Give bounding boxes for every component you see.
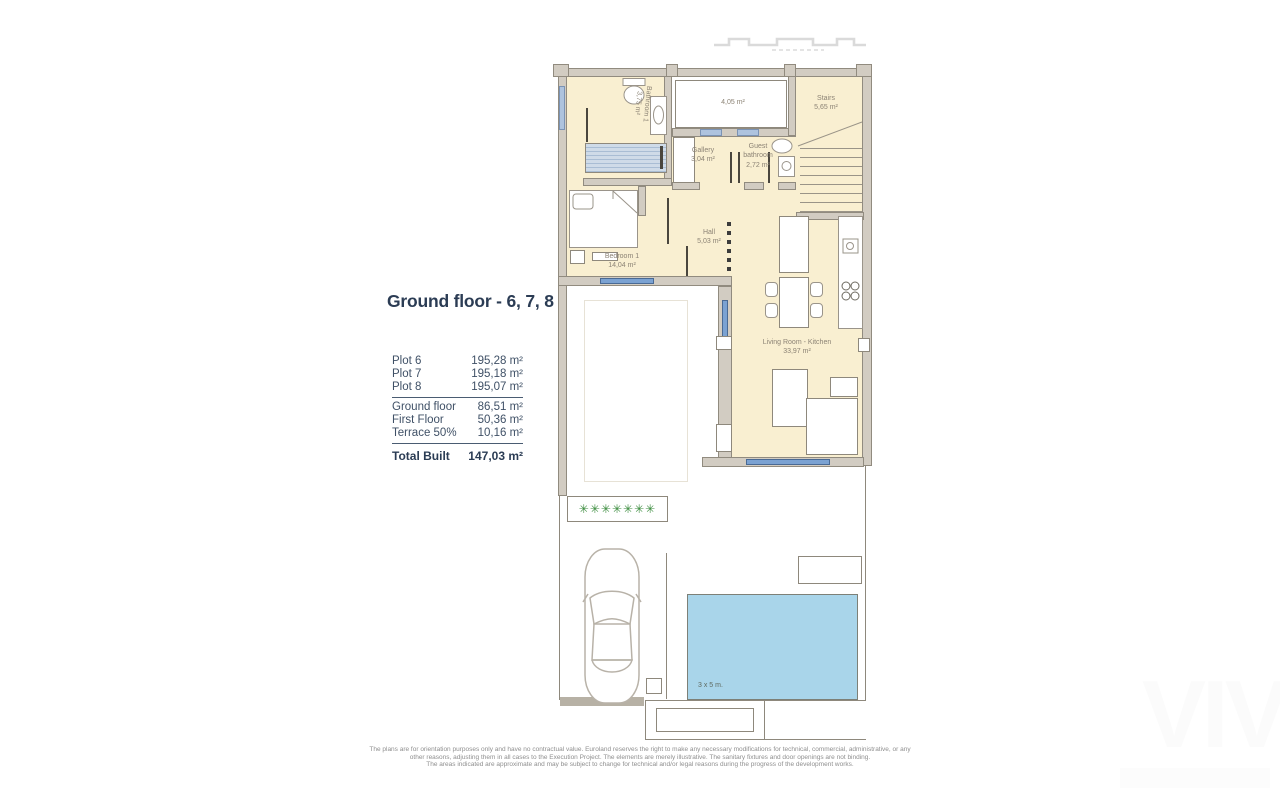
door-leaf	[730, 152, 732, 183]
divider	[392, 443, 523, 444]
room-label-gallery: Gallery 3,04 m²	[678, 146, 728, 165]
wall-pillar	[784, 64, 796, 77]
boundary-line	[666, 553, 667, 699]
door-leaf	[686, 246, 688, 276]
wall-pillar	[666, 64, 678, 77]
door-leaf	[667, 198, 669, 244]
disclaimer-line: The plans are for orientation purposes o…	[320, 746, 960, 754]
sofa-cushion	[830, 377, 858, 397]
shower	[585, 143, 667, 173]
wall-pillar	[553, 64, 569, 77]
area-value: 10,16 m²	[478, 427, 523, 440]
wall	[788, 76, 796, 136]
wall	[778, 182, 796, 190]
bed	[569, 190, 638, 249]
page-title: Ground floor - 6, 7, 8	[387, 291, 554, 312]
wall-pillar	[856, 64, 872, 77]
developer-logo-caption	[772, 49, 824, 51]
pool: 3 x 5 m.	[687, 594, 858, 700]
area-label: Ground floor	[392, 401, 456, 414]
disclaimer-line: other reasons, adjusting them in all cas…	[320, 754, 960, 762]
area-label: First Floor	[392, 414, 444, 427]
area-value: 86,51 m²	[478, 401, 523, 414]
window	[559, 86, 565, 130]
door-frame	[716, 424, 732, 452]
area-value: 50,36 m²	[478, 414, 523, 427]
dining-table	[779, 277, 809, 328]
room-label-hall: Hall 5,03 m²	[679, 228, 739, 247]
total-built-row: Total Built147,03 m²	[392, 449, 523, 463]
chair	[810, 303, 823, 318]
door-leaf	[586, 108, 588, 142]
kitchen-counter	[838, 216, 863, 329]
car	[579, 546, 645, 706]
entry-steps-inner	[656, 708, 754, 732]
stairs-treads	[800, 140, 862, 212]
terrace-outline	[584, 300, 688, 482]
watermark: VIV	[1142, 660, 1280, 770]
pool-size-label: 3 x 5 m.	[698, 681, 748, 690]
room-label-guest-bathroom: Guest bathroom 2,72 m²	[738, 142, 778, 170]
stairs-diagonal	[796, 118, 864, 148]
sink	[778, 156, 796, 178]
plot-label: Plot 7	[392, 368, 421, 381]
disclaimer: The plans are for orientation purposes o…	[320, 746, 960, 769]
plot-label: Plot 6	[392, 355, 421, 368]
boundary-line	[559, 496, 560, 700]
table-row: Plot 6195,28 m²	[392, 355, 523, 368]
table-row: Terrace 50%10,16 m²	[392, 427, 523, 440]
sofa	[806, 398, 858, 455]
table-row: Plot 7195,18 m²	[392, 368, 523, 381]
wall	[583, 178, 672, 186]
wall	[672, 128, 796, 137]
window	[600, 278, 654, 284]
sofa	[772, 369, 808, 427]
plot-value: 195,18 m²	[471, 368, 523, 381]
planter: ✳✳✳✳✳✳✳	[567, 496, 668, 522]
window-frame	[858, 338, 870, 352]
window	[737, 129, 759, 136]
window	[746, 459, 830, 465]
area-label: Terrace 50%	[392, 427, 457, 440]
floorplan-page: Ground floor - 6, 7, 8 Plot 6195,28 m² P…	[0, 0, 1280, 800]
divider	[392, 397, 523, 398]
table-row: Ground floor86,51 m²	[392, 401, 523, 414]
plot-value: 195,07 m²	[471, 381, 523, 394]
disclaimer-line: The areas indicated are approximate and …	[320, 761, 960, 769]
room-label-patio: 4,05 m²	[703, 98, 763, 107]
plot-label: Plot 8	[392, 381, 421, 394]
window-frame	[716, 336, 732, 350]
wall	[558, 68, 872, 77]
chair	[765, 303, 778, 318]
boundary-line	[765, 700, 866, 701]
boundary-line	[865, 466, 866, 700]
chair	[810, 282, 823, 297]
room-label-living-kitchen: Living Room - Kitchen 33,97 m²	[742, 338, 852, 357]
watermark-bar	[1120, 768, 1270, 788]
area-table: Plot 6195,28 m² Plot 7195,18 m² Plot 819…	[392, 355, 523, 463]
plot-value: 195,28 m²	[471, 355, 523, 368]
table-row: Plot 8195,07 m²	[392, 381, 523, 394]
sink	[650, 96, 668, 136]
garden-box	[646, 678, 662, 694]
wall	[638, 186, 646, 216]
nightstand	[570, 250, 585, 264]
room-label-bedroom1: Bedroom 1 14,04 m²	[592, 252, 652, 271]
chair	[765, 282, 778, 297]
kitchen-island	[779, 216, 809, 273]
terrace-pad	[798, 556, 862, 584]
wall	[744, 182, 764, 190]
shower-door	[660, 146, 663, 169]
wall	[672, 182, 700, 190]
table-row: First Floor50,36 m²	[392, 414, 523, 427]
room-label-stairs: Stairs 5,65 m²	[798, 94, 854, 113]
window	[700, 129, 722, 136]
